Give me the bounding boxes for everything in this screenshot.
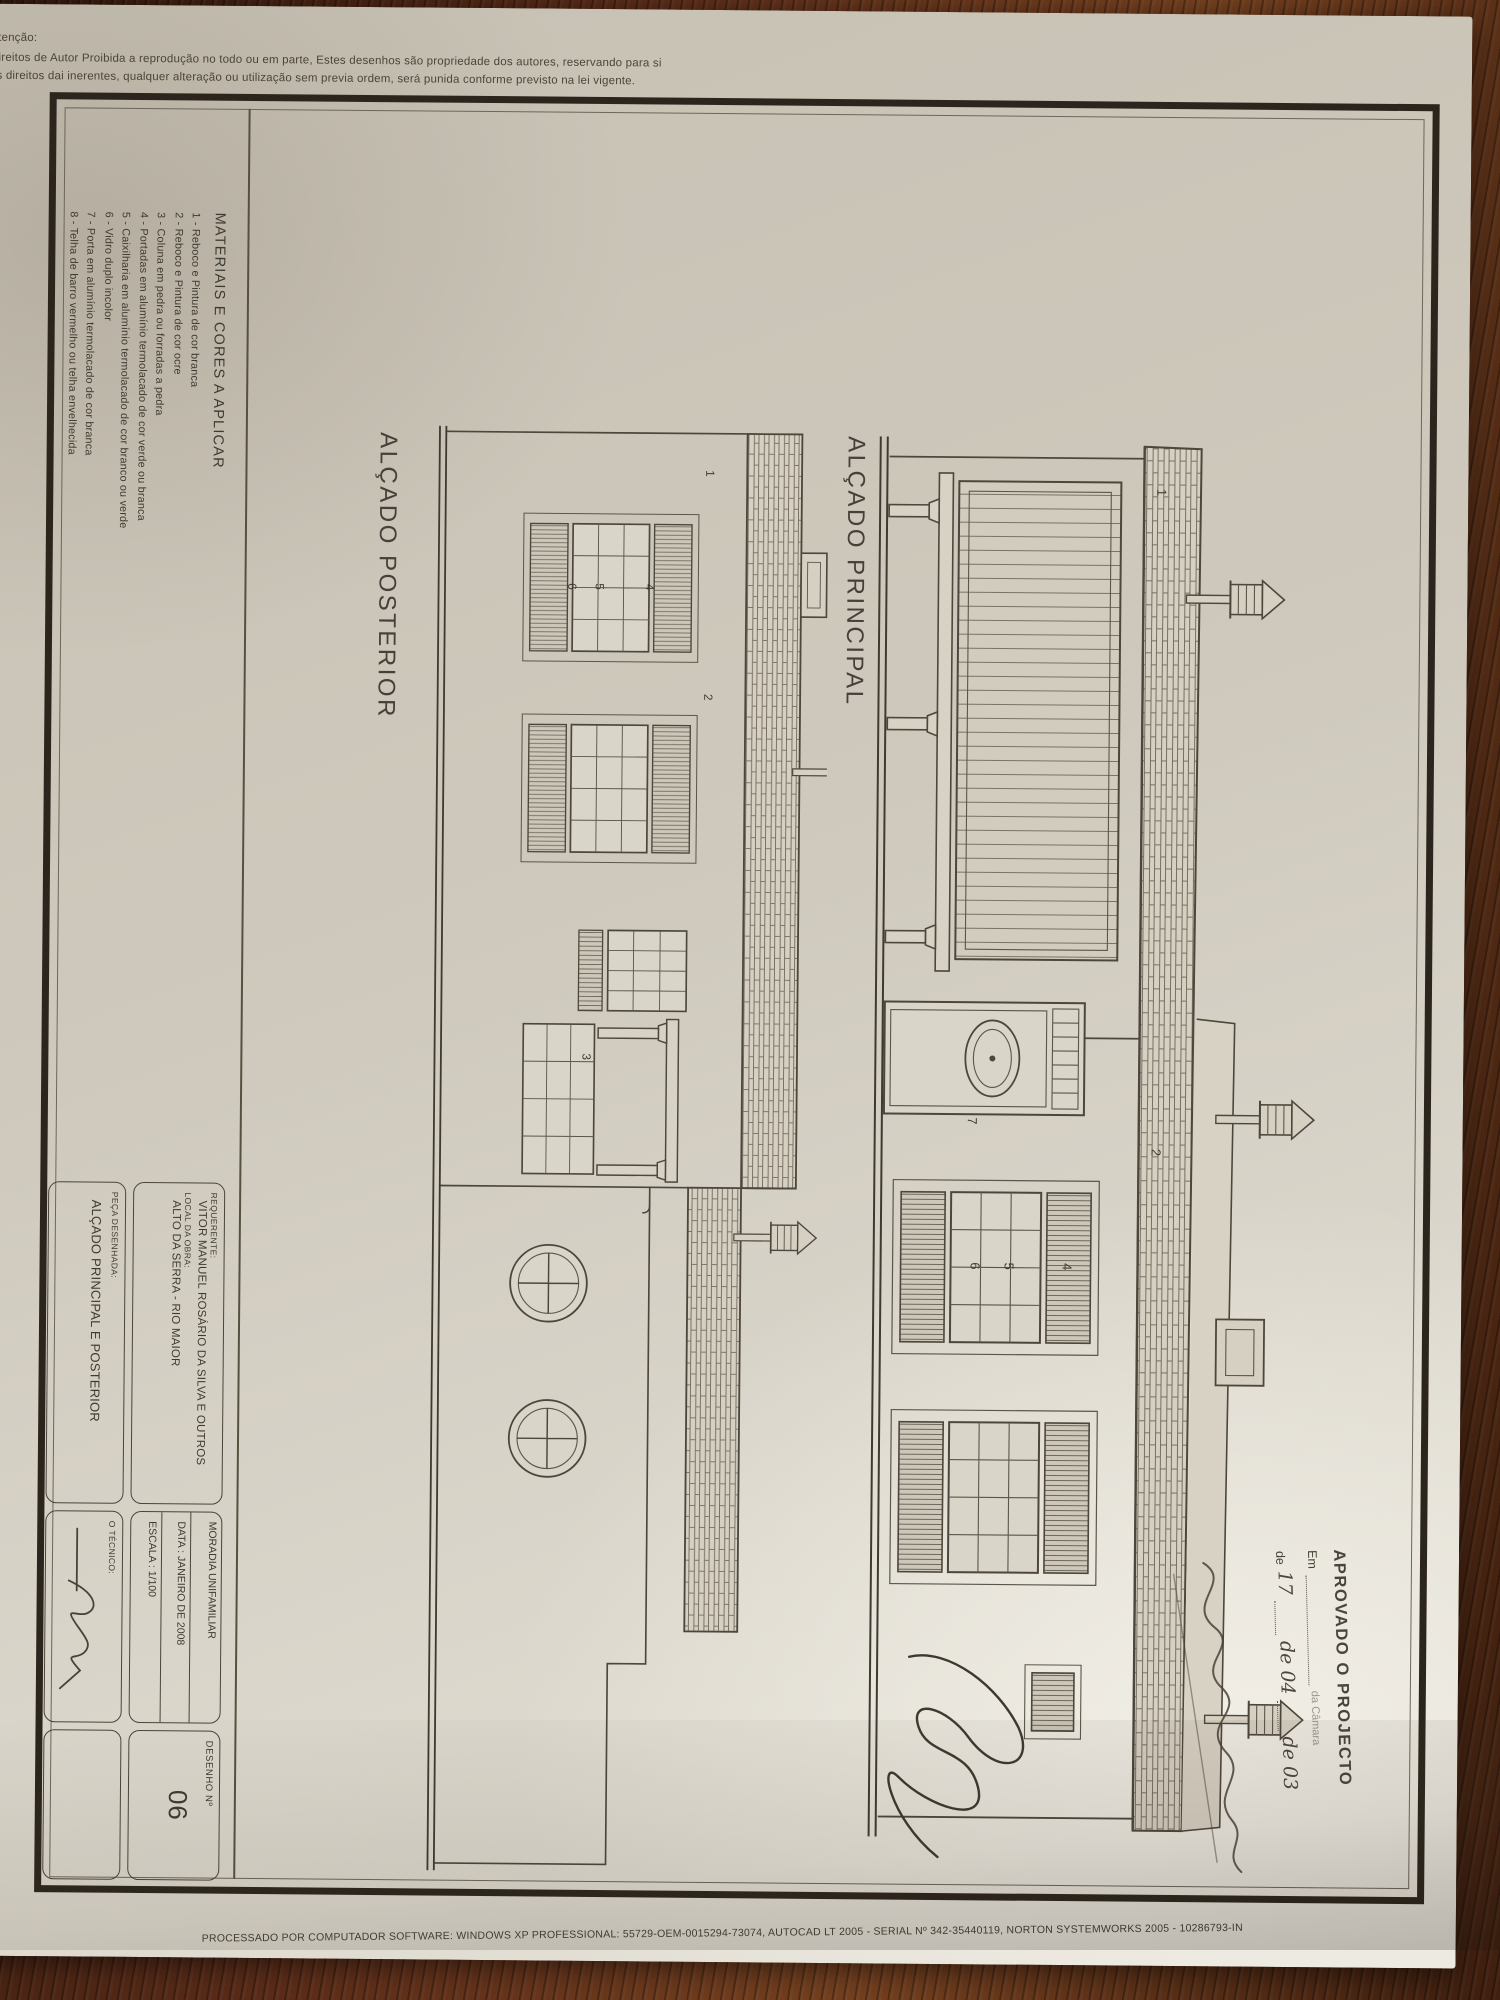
stamp-date-de1: de	[1273, 1551, 1287, 1565]
callout-principal-5: 5	[1002, 1263, 1017, 1270]
requerente-cell: REQUERENTE: VITOR MANUEL ROSÁRIO DA SILV…	[130, 1182, 225, 1505]
local-obra-label: LOCAL DA OBRA:	[181, 1192, 194, 1494]
requerente-value: VITOR MANUEL ROSÁRIO DA SILVA E OUTROS	[194, 1200, 209, 1494]
callout-principal-6: 6	[968, 1262, 983, 1269]
copyright-notice: Atenção: Direitos de Autor Proibida a re…	[0, 30, 662, 91]
peca-desenhada-cell: PEÇA DESENHADA: ALÇADO PRINCIPAL E POSTE…	[45, 1181, 126, 1504]
stamp-date-blank1	[1274, 1601, 1288, 1635]
project-type: MORADIA UNIFAMILIAR	[190, 1512, 222, 1722]
posterior-elevation-drawing: 1 2 3 4 5 6	[397, 412, 830, 1896]
stamp-date-day: 17	[1273, 1570, 1296, 1595]
callout-posterior-5: 5	[593, 583, 607, 590]
posterior-elevation-title: ALÇADO POSTERIOR	[371, 432, 402, 719]
peca-desenhada-value: ALÇADO PRINCIPAL E POSTERIOR	[87, 1200, 105, 1494]
callout-principal-4: 4	[1060, 1263, 1075, 1270]
info-band-separator	[234, 109, 251, 1879]
callout-principal-2: 2	[1149, 1149, 1164, 1156]
stamp-em-label: Em	[1305, 1550, 1319, 1569]
materials-legend: MATERIAIS E CORES A APLICAR 1 - Reboco e…	[57, 211, 228, 972]
callout-posterior-1: 1	[703, 470, 717, 477]
local-obra-value: ALTO DA SERRA - RIO MAIOR	[168, 1200, 183, 1494]
callout-posterior-4: 4	[643, 584, 657, 591]
callout-posterior-2: 2	[701, 694, 715, 701]
stamp-em-blank	[1306, 1575, 1322, 1685]
requerente-label: REQUERENTE:	[207, 1193, 220, 1495]
drawing-frame: ALÇADO PRINCIPAL ALÇADO POSTERIOR	[34, 92, 1440, 1904]
project-date: DATA : JANEIRO DE 2008	[161, 1512, 192, 1722]
tecnico-signature	[54, 1520, 108, 1700]
callout-posterior-3: 3	[579, 1053, 593, 1060]
stamp-date-month: de 04	[1275, 1641, 1298, 1695]
materials-title: MATERIAIS E CORES A APLICAR	[205, 213, 228, 973]
tecnico-label: O TÉCNICO:	[106, 1521, 118, 1713]
callout-posterior-6: 6	[565, 583, 579, 590]
tecnico-cell: O TÉCNICO:	[44, 1510, 124, 1723]
paper-fold-shadow	[0, 1720, 1500, 1950]
peca-desenhada-label: PEÇA DESENHADA:	[108, 1192, 121, 1494]
drawing-sheet: Atenção: Direitos de Autor Proibida a re…	[0, 3, 1472, 1968]
callout-principal-1: 1	[1154, 489, 1169, 496]
principal-elevation-title: ALÇADO PRINCIPAL	[839, 436, 869, 707]
project-scale: ESCALA : 1/100	[132, 1512, 163, 1722]
photo-of-architectural-drawing: { "header": { "attention": "Atenção:", "…	[0, 0, 1500, 2000]
callout-principal-7: 7	[965, 1117, 980, 1124]
project-info-cell: MORADIA UNIFAMILIAR DATA : JANEIRO DE 20…	[129, 1511, 223, 1724]
